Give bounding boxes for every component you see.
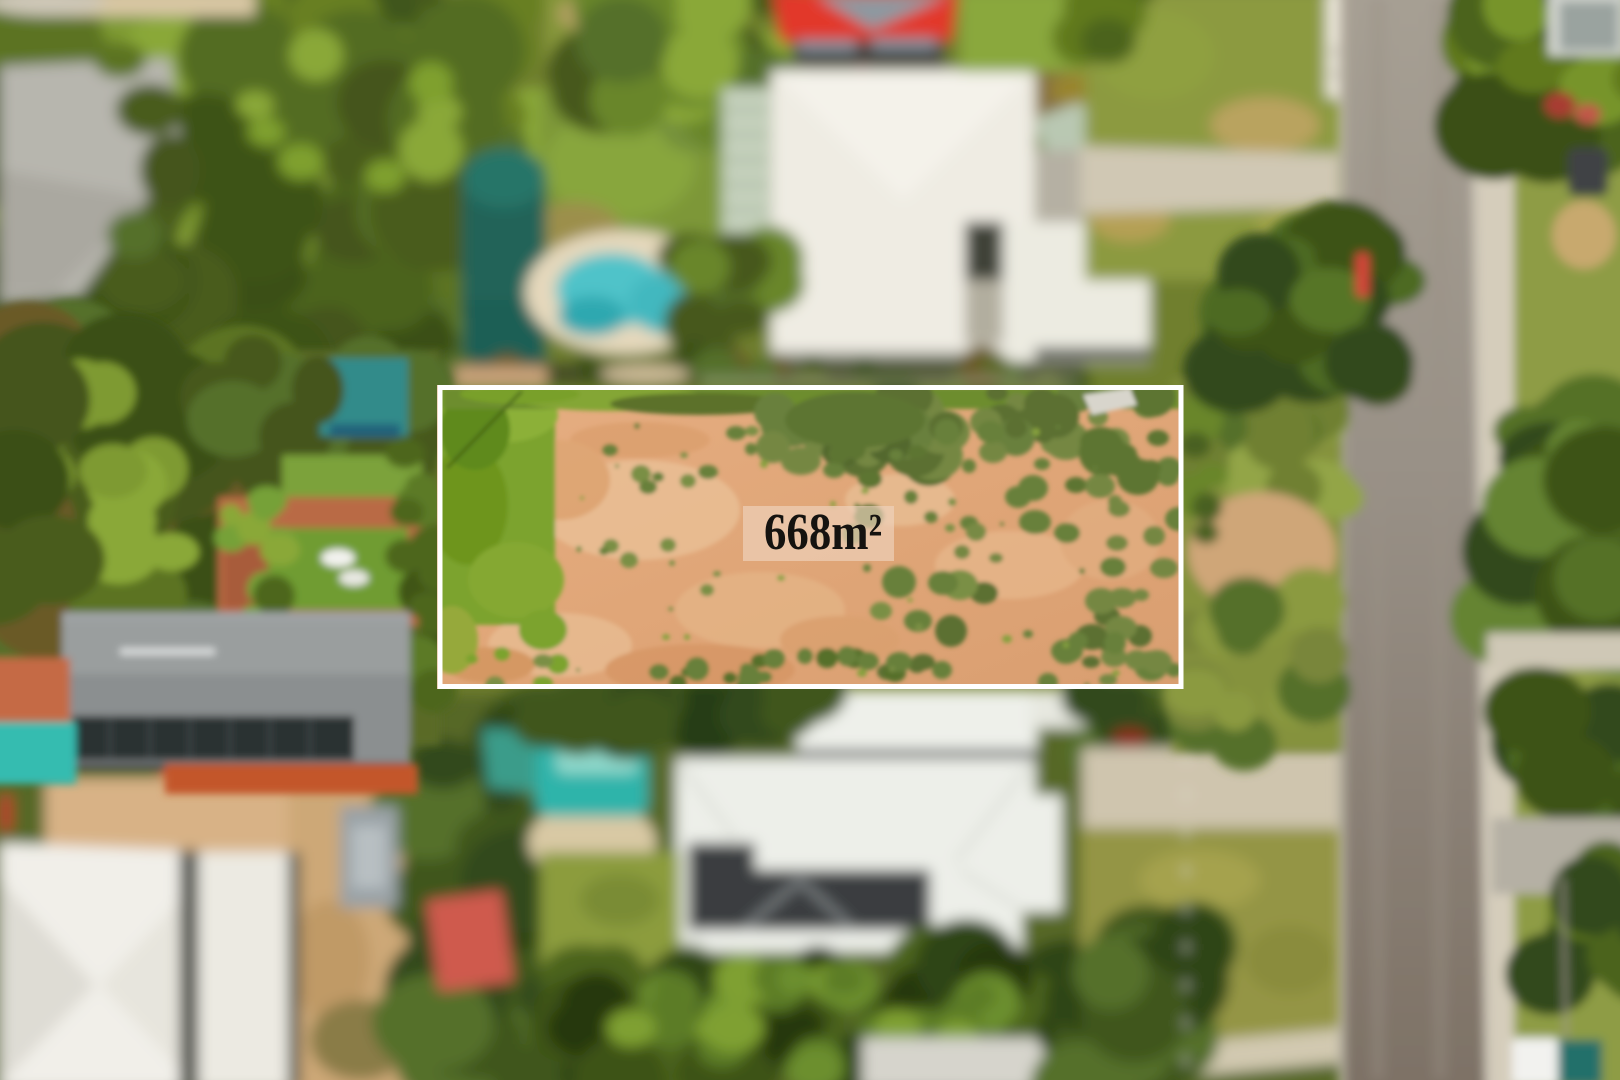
svg-text:668m²: 668m² [764, 504, 882, 561]
